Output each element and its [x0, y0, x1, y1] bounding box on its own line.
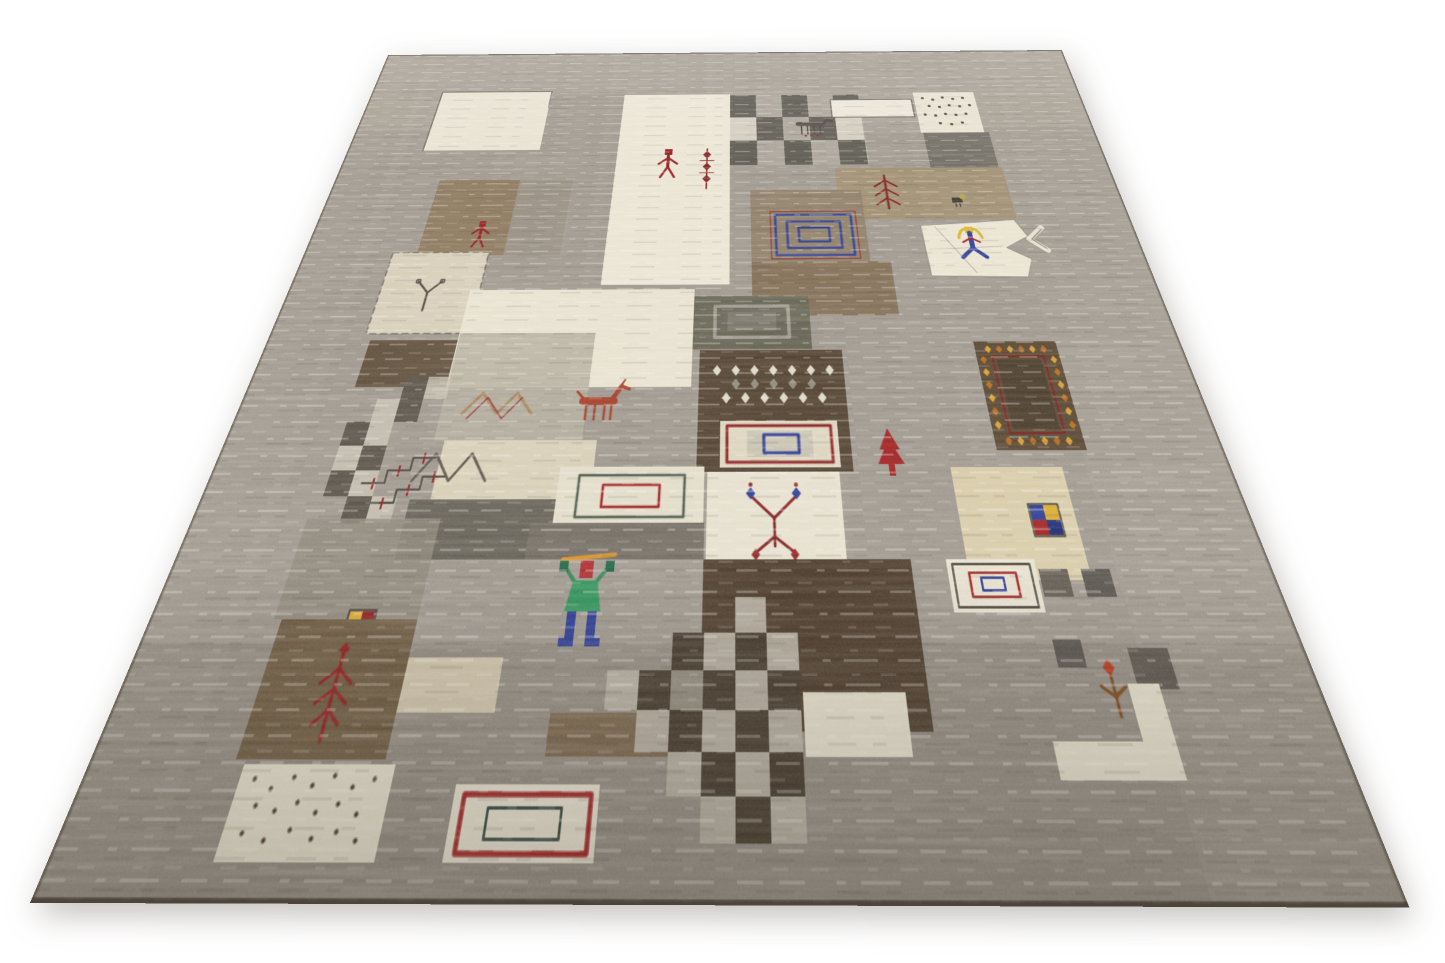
rug-photo-svg	[30, 50, 1409, 908]
photo-canvas	[0, 0, 1445, 963]
wool-texture	[30, 50, 1409, 908]
vignette-overlay	[30, 50, 1409, 908]
rug-perspective	[30, 50, 1409, 908]
rug	[0, 0, 1445, 963]
